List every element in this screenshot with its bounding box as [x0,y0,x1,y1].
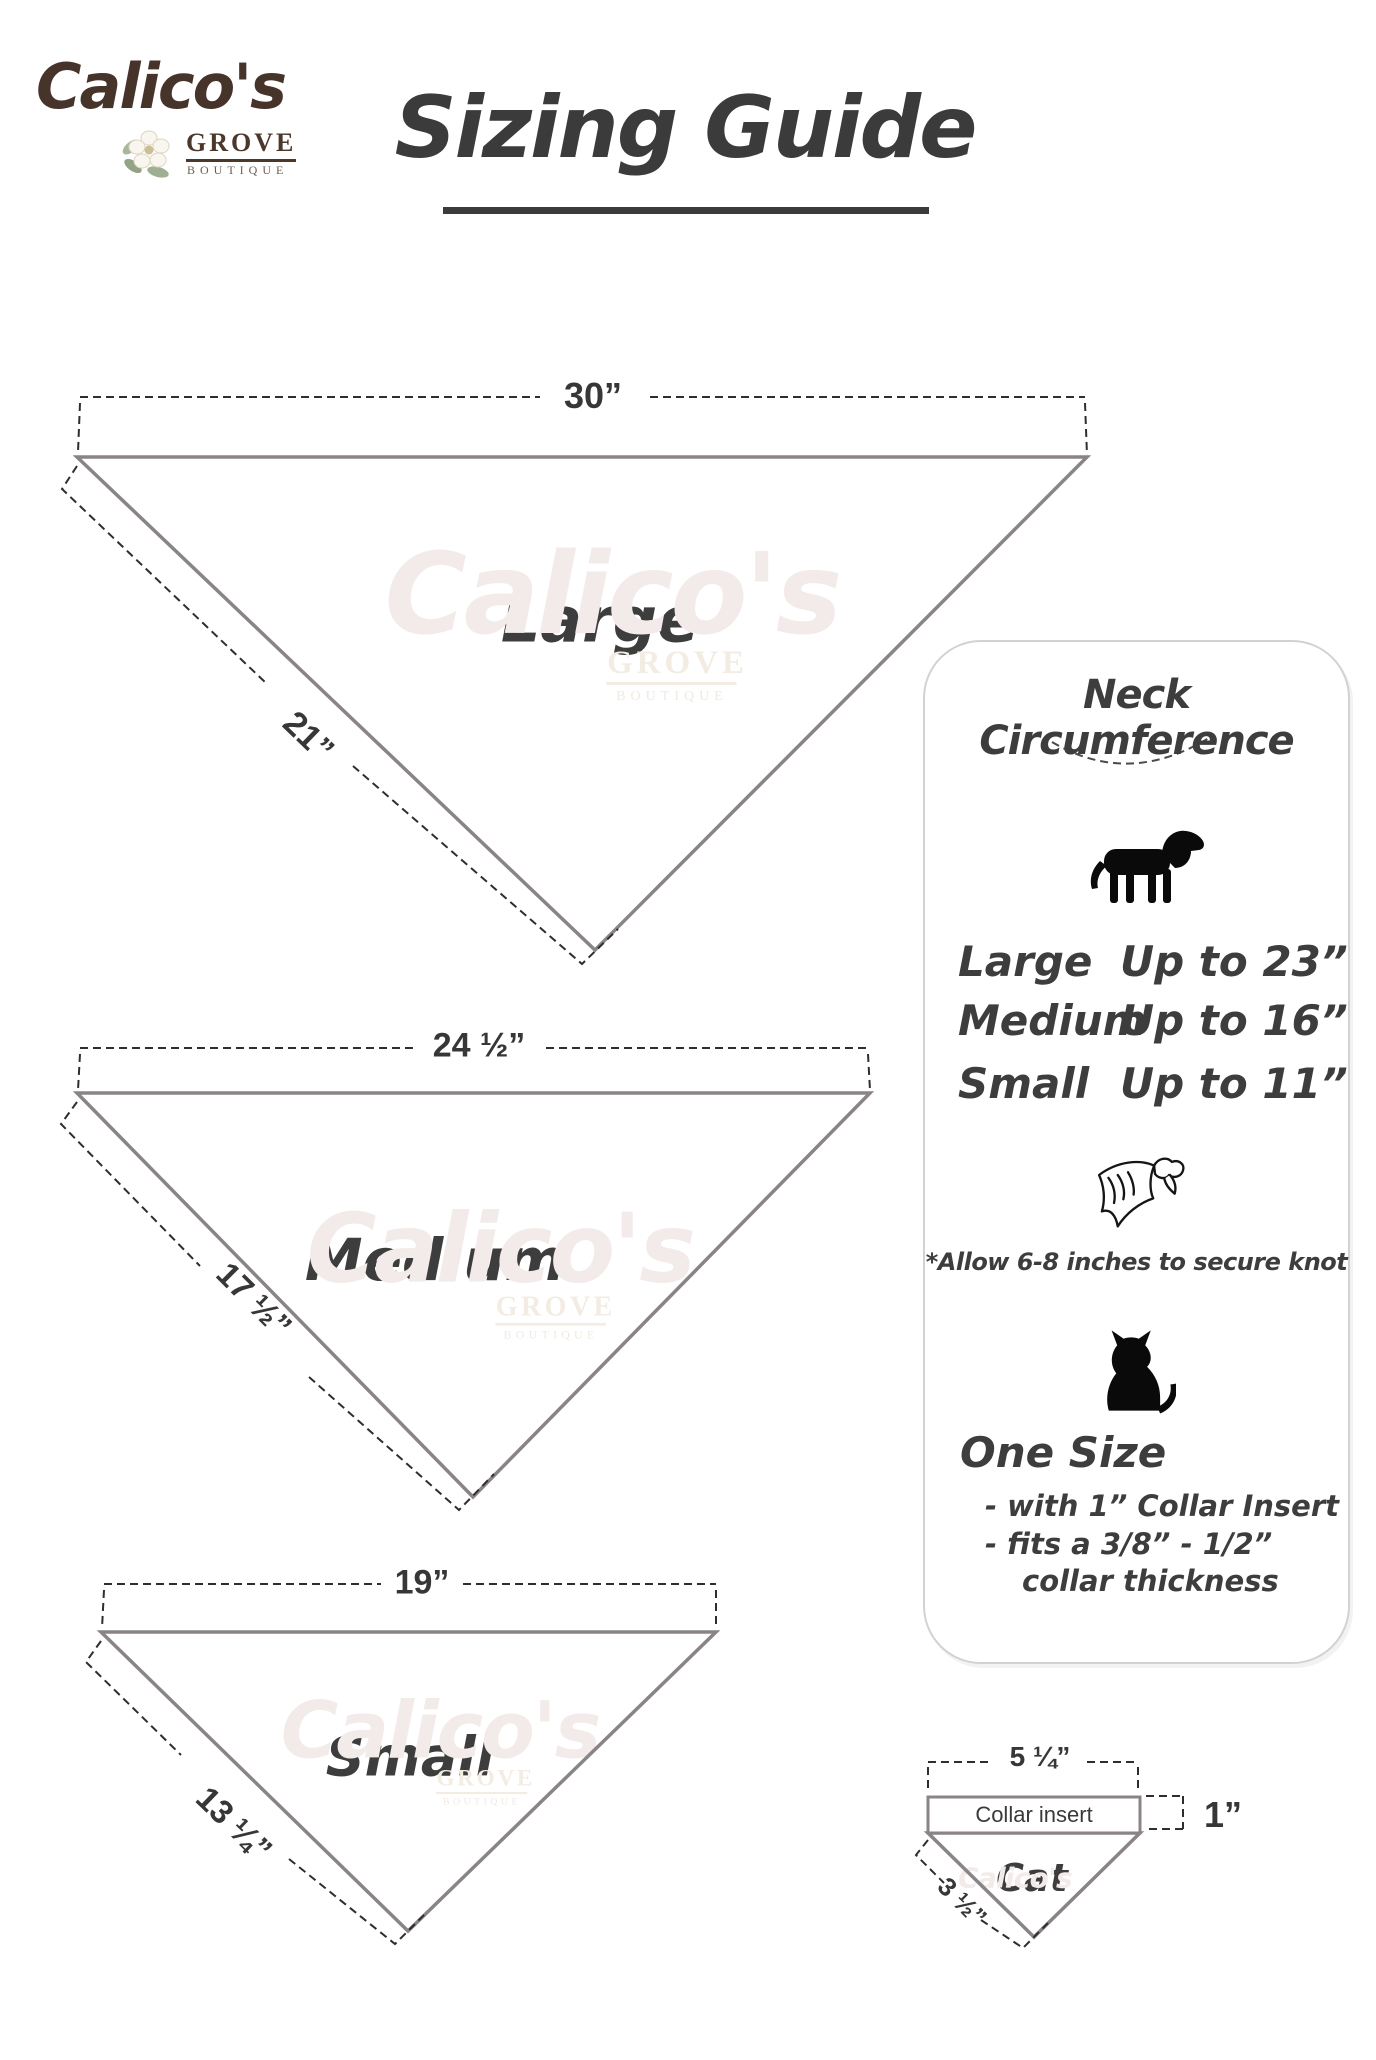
panel-row-medium-size: Medium [958,996,1146,1045]
logo-script: Calico's [36,50,285,123]
title-underline [443,207,929,214]
dim-label-medium-top: 24 ½” [433,1027,526,1066]
dim-bracket-insert-height [1146,1796,1183,1829]
flower-icon [118,120,178,187]
dim-guide-medium-side-a [61,1102,200,1266]
dim-tick-large-left [78,403,80,452]
dim-tick-large-right [1085,403,1087,455]
collar-insert-label: Collar insert [931,1800,1137,1830]
one-size-line-2: - fits a 3/8” - 1/2” [985,1527,1272,1561]
logo-grove: GROVE [186,128,296,162]
panel-row-large-value: Up to 23” [1120,937,1348,986]
dim-tick-medium-left [78,1054,80,1090]
panel-row-medium-value: Up to 16” [1120,996,1348,1045]
panel-heading: Neck Circumference [923,672,1350,764]
page-title: Sizing Guide [395,78,976,178]
panel-row-large-size: Large [958,937,1092,986]
dim-guide-large-side-a [62,466,266,683]
dim-label-small-top: 19” [395,1564,450,1603]
sizing-guide-page: Calico's GROVE BOUTIQUE Calico's GROVE B… [0,0,1376,2060]
cat-icon [1092,1324,1176,1423]
dog-icon [1088,818,1208,915]
bandana-icon [1086,1150,1198,1247]
dim-tick-small-left [102,1590,104,1628]
triangle-medium [77,1093,870,1497]
dim-tick-medium-right [868,1054,870,1090]
triangle-small [101,1632,716,1931]
panel-row-small-value: Up to 11” [1120,1059,1348,1108]
knot-note: *Allow 6-8 inches to secure knot [923,1248,1350,1276]
one-size-line-1: - with 1” Collar Insert [985,1489,1339,1523]
dim-label-large-top: 30” [564,375,622,417]
dim-guide-cat-side-b [981,1920,1048,1948]
dim-label-cat-top: 5 ¼” [1010,1741,1071,1773]
triangle-cat [928,1833,1140,1937]
one-size-line-3: collar thickness [1022,1564,1279,1598]
logo-boutique: BOUTIQUE [187,163,288,178]
one-size-heading: One Size [960,1428,1166,1477]
panel-row-small-size: Small [958,1059,1089,1108]
